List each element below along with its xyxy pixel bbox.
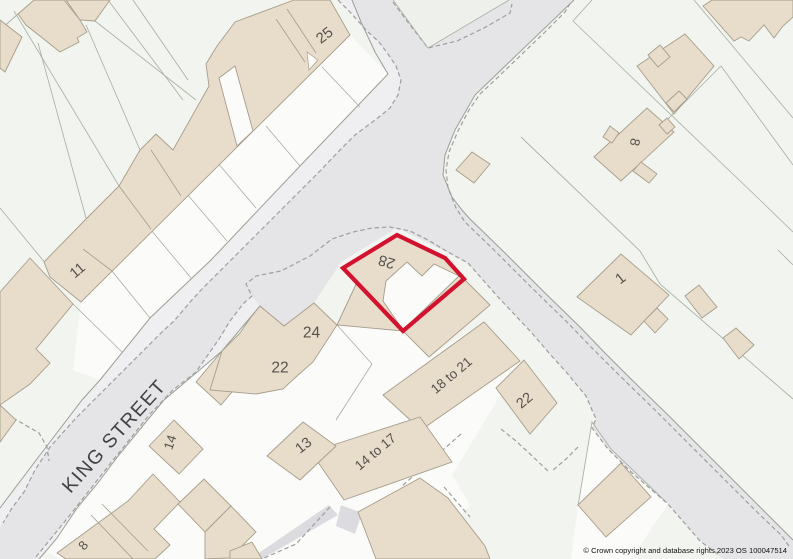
svg-text:24: 24 — [303, 325, 321, 342]
svg-text:© Crown copyright and database: © Crown copyright and database rights 20… — [583, 546, 787, 555]
svg-text:22: 22 — [271, 360, 288, 377]
